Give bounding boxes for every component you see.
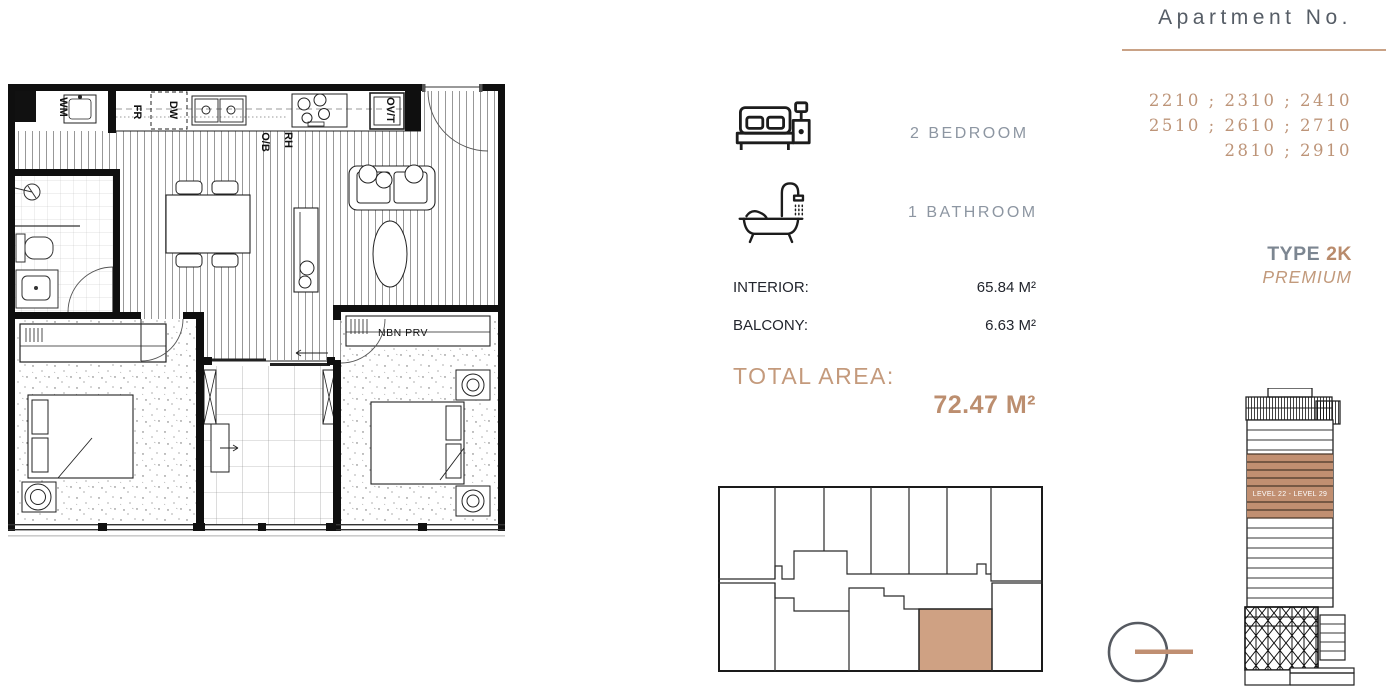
keyplan-highlighted-unit <box>919 609 992 671</box>
balcony-value: 6.63 M² <box>985 317 1036 334</box>
bath-icon <box>737 176 805 248</box>
compass-icon <box>1095 608 1205 688</box>
fr-label: FR <box>131 105 143 120</box>
dw-label: DW <box>167 101 179 120</box>
ob-label: O/B <box>259 132 271 152</box>
balcony-area-row: BALCONY: 6.63 M² <box>733 317 1036 334</box>
ovt-label: OV/T <box>384 97 396 123</box>
total-area-value: 72.47 M² <box>733 391 1036 420</box>
bathroom <box>15 176 113 312</box>
tower-elevation: LEVEL 22 - LEVEL 29 <box>1238 388 1358 695</box>
tier-label: PREMIUM <box>1052 267 1352 288</box>
bedroom-2: NBN PRV <box>341 316 498 524</box>
apartment-no-title: Apartment No. <box>1000 6 1352 30</box>
apartment-numbers-line1: 2210 ; 2310 ; 2410 <box>1000 88 1352 113</box>
bathroom-count-label: 1 BATHROOM <box>908 204 1038 222</box>
interior-label: INTERIOR: <box>733 279 809 296</box>
keyplan <box>718 486 1043 672</box>
tower-level-range-label: LEVEL 22 - LEVEL 29 <box>1253 491 1327 498</box>
type-line: TYPE 2K <box>1052 243 1352 266</box>
nbn-prv-label: NBN PRV <box>378 327 428 339</box>
balcony-label: BALCONY: <box>733 317 808 334</box>
kitchen <box>15 91 421 131</box>
wm-label: WM <box>57 97 69 117</box>
window-band <box>8 523 505 536</box>
apartment-numbers: 2210 ; 2310 ; 2410 2510 ; 2610 ; 2710 28… <box>1000 88 1352 163</box>
title-divider <box>1122 49 1386 51</box>
bed-icon <box>733 98 815 162</box>
bedroom-1 <box>15 319 196 524</box>
apartment-numbers-line3: 2810 ; 2910 <box>1000 138 1352 163</box>
total-area-label: TOTAL AREA: <box>733 363 895 390</box>
balcony <box>204 359 335 525</box>
interior-value: 65.84 M² <box>977 279 1036 296</box>
rh-label: RH <box>282 132 294 148</box>
type-label: TYPE <box>1267 243 1326 265</box>
apartment-numbers-line2: 2510 ; 2610 ; 2710 <box>1000 113 1352 138</box>
interior-area-row: INTERIOR: 65.84 M² <box>733 279 1036 296</box>
floor-plan: NBN PRV <box>8 76 505 543</box>
type-value: 2K <box>1326 243 1352 265</box>
